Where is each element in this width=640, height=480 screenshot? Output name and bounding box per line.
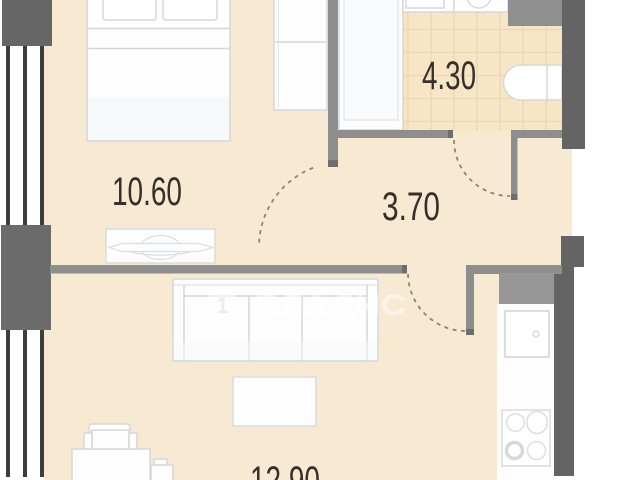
svg-text:10.60: 10.60 — [112, 170, 182, 214]
svg-text:4.30: 4.30 — [422, 54, 476, 98]
svg-text:3.70: 3.70 — [382, 185, 440, 229]
svg-text:ВЛАДИС: ВЛАДИС — [255, 289, 406, 322]
svg-text:12.90: 12.90 — [250, 459, 320, 480]
svg-text:1: 1 — [216, 293, 228, 318]
